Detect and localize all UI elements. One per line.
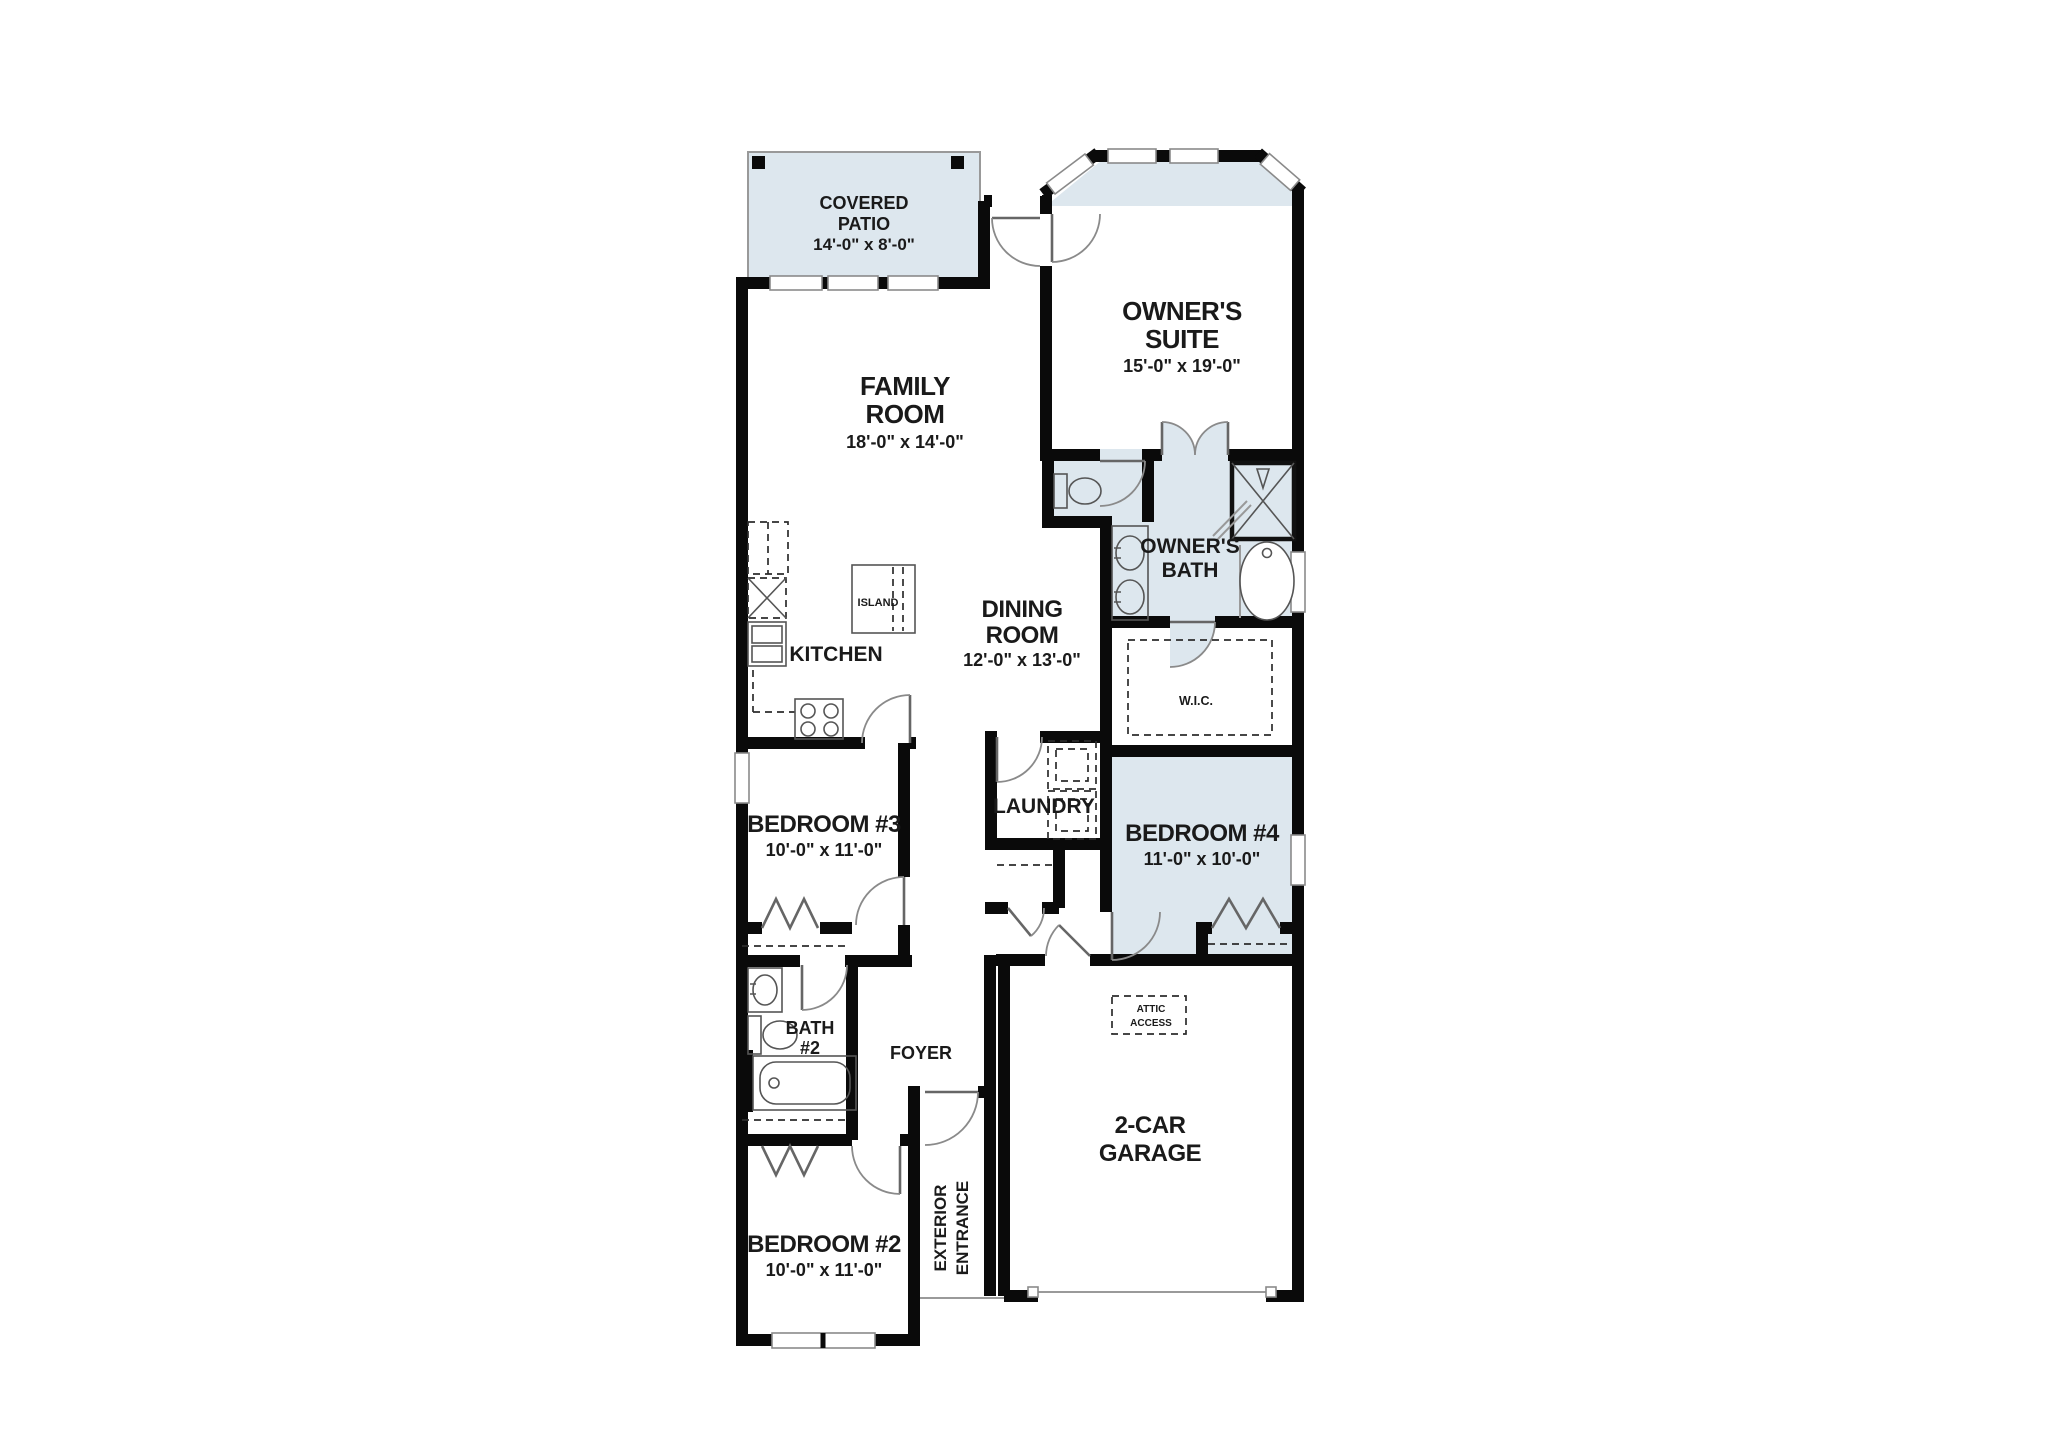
room-name: PATIO: [838, 214, 890, 234]
room-dims: 12'-0" x 13'-0": [963, 650, 1081, 670]
kitchen-counter-edge: [753, 670, 795, 712]
room-dims: 15'-0" x 19'-0": [1123, 356, 1241, 376]
room-name: BEDROOM #2: [747, 1231, 901, 1258]
bedroom3-window: [735, 753, 749, 803]
bay-window: [1108, 149, 1156, 163]
room-name: W.I.C.: [1179, 694, 1213, 708]
bedroom3-bifold-doors: [762, 899, 818, 928]
label-bedroom2: BEDROOM #2 10'-0" x 11'-0": [747, 1231, 901, 1280]
label-garage: 2-CAR GARAGE: [1099, 1112, 1202, 1167]
label-kitchen: KITCHEN: [789, 643, 882, 666]
wall-oven: [748, 622, 786, 666]
bedroom4-window: [1291, 835, 1305, 885]
patio-post: [951, 156, 964, 169]
toilet-tank: [748, 1016, 761, 1054]
label-family-room: FAMILY ROOM 18'-0" x 14'-0": [846, 371, 964, 452]
room-name: BATH: [1162, 559, 1219, 582]
room-dims: 10'-0" x 11'-0": [766, 1260, 883, 1280]
sink: [753, 975, 777, 1005]
room-name: LAUNDRY: [993, 795, 1095, 818]
room-name: GARAGE: [1099, 1140, 1202, 1167]
patio-post: [752, 156, 765, 169]
family-room-window: [770, 276, 822, 290]
room-dims: 14'-0" x 8'-0": [813, 235, 915, 254]
room-name: ACCESS: [1130, 1018, 1172, 1029]
room-name: SUITE: [1145, 324, 1219, 354]
room-name: DINING: [982, 596, 1063, 623]
label-owners-suite: OWNER'S SUITE 15'-0" x 19'-0": [1122, 296, 1242, 376]
label-laundry: LAUNDRY: [993, 795, 1095, 818]
label-bedroom4: BEDROOM #4 11'-0" x 10'-0": [1125, 820, 1280, 869]
room-name: COVERED: [819, 193, 908, 213]
room-labels: COVERED PATIO 14'-0" x 8'-0" FAMILY ROOM…: [747, 193, 1280, 1280]
room-dims: 18'-0" x 14'-0": [846, 432, 964, 452]
label-bedroom3: BEDROOM #3 10'-0" x 11'-0": [747, 811, 901, 860]
room-name: ENTRANCE: [953, 1181, 972, 1275]
room-name: 2-CAR: [1115, 1112, 1186, 1139]
room-name: OWNER'S: [1122, 296, 1242, 326]
room-dims: 11'-0" x 10'-0": [1144, 849, 1261, 869]
label-foyer: FOYER: [890, 1043, 952, 1063]
label-exterior-entrance: EXTERIOR ENTRANCE: [931, 1181, 972, 1275]
label-wic: W.I.C.: [1179, 694, 1213, 708]
label-attic-access: ATTIC ACCESS: [1130, 1004, 1172, 1029]
room-name: BEDROOM #3: [747, 811, 901, 838]
room-name: FOYER: [890, 1043, 952, 1063]
bathtub: [1240, 542, 1294, 620]
room-name: ATTIC: [1137, 1004, 1166, 1015]
room-dims: 10'-0" x 11'-0": [766, 840, 883, 860]
room-name: FAMILY: [860, 371, 950, 401]
tub-drain: [769, 1078, 779, 1088]
room-name: KITCHEN: [789, 643, 882, 666]
floor-plan-page: COVERED PATIO 14'-0" x 8'-0" FAMILY ROOM…: [0, 0, 2048, 1446]
family-room-window: [888, 276, 938, 290]
bedroom2-bifold-doors: [762, 1146, 818, 1175]
label-dining-room: DINING ROOM 12'-0" x 13'-0": [963, 596, 1081, 670]
label-bath2: BATH #2: [786, 1018, 835, 1058]
room-name: BEDROOM #4: [1125, 820, 1280, 847]
room-name: ROOM: [866, 399, 945, 429]
room-name: ISLAND: [858, 597, 899, 609]
room-name: ROOM: [986, 622, 1059, 649]
label-island: ISLAND: [858, 597, 899, 609]
plumbing-wall-block: [736, 1050, 753, 1112]
room-name: OWNER'S: [1140, 535, 1240, 558]
room-name: #2: [800, 1038, 820, 1058]
bay-window: [1170, 149, 1218, 163]
floor-plan-canvas: COVERED PATIO 14'-0" x 8'-0" FAMILY ROOM…: [0, 0, 2048, 1446]
room-name: EXTERIOR: [931, 1185, 950, 1272]
family-room-window: [828, 276, 878, 290]
room-name: BATH: [786, 1018, 835, 1038]
